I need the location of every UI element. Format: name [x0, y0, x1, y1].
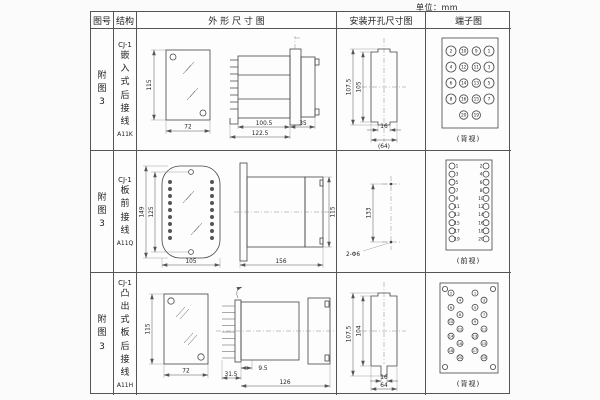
dim-overall-depth: 126 [279, 380, 290, 386]
terminal-number: 9 [474, 49, 477, 55]
terminal-number: 14 [460, 81, 466, 87]
terminal-number: 5 [455, 180, 458, 186]
dim-terminal-length: 31.5 [224, 372, 237, 378]
row1-terminal-cell: 210914121136141358161572019 (背视) [426, 29, 511, 151]
row3-outline-cell: 115 72 9.5 31.5 126 [137, 273, 337, 395]
dim-cutout-inner: 105 [356, 81, 362, 92]
terminal-number: 1 [455, 164, 458, 170]
row1-outline-drawing: 115 72 100.5 35 [138, 30, 336, 150]
row3-outline-drawing: 115 72 9.5 31.5 126 [138, 274, 336, 394]
terminal-circle [483, 212, 489, 218]
structure-model-code: A11Q [117, 240, 133, 247]
row3-fig-no: 附图3 [91, 273, 114, 395]
dim-cutout-outer: 107.5 [346, 325, 352, 342]
terminal-number: 8 [449, 97, 452, 103]
terminal-number: 19 [481, 356, 486, 360]
terminal-number: 6 [449, 305, 452, 309]
structure-model-series: CJ-1 [118, 279, 132, 287]
row2-outline-cell: 149 125 105 156 115 [137, 151, 337, 273]
terminal-circle [449, 171, 455, 177]
dim-overall-depth: 122.5 [251, 130, 268, 136]
terminal-number: 7 [487, 97, 490, 103]
header-install: 安装开孔尺寸图 [337, 12, 426, 29]
row2-terminal-diagram: 1357911131517192468101214161820 [434, 157, 504, 253]
terminal-circle [449, 195, 455, 201]
row3-terminal-cell: 2468101214161820135791113151719 (背视) [426, 273, 511, 395]
terminal-number: 16 [460, 97, 466, 103]
dim-plate-depth: 9.5 [258, 366, 268, 372]
hole-mark-top [389, 182, 392, 185]
header-structure: 结构 [114, 12, 137, 29]
terminal-number: 15 [454, 220, 460, 226]
dim-front-width: 72 [182, 369, 190, 375]
terminal-number: 18 [448, 349, 453, 353]
terminal-circle [483, 163, 489, 169]
structure-model-series: CJ-1 [118, 176, 132, 184]
terminal-circle [442, 364, 447, 369]
terminal-circle [483, 220, 489, 226]
front-view: 115 72 [147, 50, 210, 134]
terminal-box [446, 160, 492, 250]
row1-install-drawing: 107.5 105 16 (64) [338, 30, 425, 150]
structure-name: 凸出式板后接线 [120, 288, 130, 379]
terminal-number: 10 [460, 49, 466, 55]
terminal-number: 1 [487, 49, 490, 55]
terminal-number: 6 [479, 180, 482, 186]
terminal-number: 16 [457, 341, 462, 345]
terminal-number: 19 [454, 237, 460, 243]
dim-cutout-outer: 107.5 [346, 78, 352, 95]
dim-front-height: 115 [145, 323, 151, 334]
fig-no-text: 附图3 [97, 314, 107, 353]
row3-terminal-diagram: 2468101214161820135791113151719 [434, 280, 504, 376]
row3-structure: CJ-1 凸出式板后接线 A11H [114, 273, 137, 395]
terminal-number: 15 [481, 341, 486, 345]
terminal-number: 17 [454, 228, 460, 234]
front-view: 149 125 105 [139, 166, 220, 268]
dim-cutout-width: (64) [378, 144, 390, 150]
structure-name: 板前接线 [120, 185, 130, 237]
row2-structure: CJ-1 板前接线 A11Q [114, 151, 137, 273]
terminal-box [440, 283, 498, 373]
fig-no-text: 附图3 [97, 192, 107, 231]
terminal-number: 12 [457, 327, 462, 331]
hole-size-label: 2-Φ6 [345, 252, 359, 258]
terminal-view-caption: (前视) [457, 256, 480, 266]
row3-install-cell: 107.5 104 16 64 [337, 273, 426, 395]
front-view: 115 72 [145, 294, 208, 378]
terminal-circle [490, 364, 495, 369]
dim-front-height: 115 [147, 79, 153, 90]
terminal-number: 19 [473, 113, 479, 119]
side-view: 9.5 31.5 126 [216, 287, 334, 388]
row1-structure: CJ-1 嵌入式后接线 A11K [114, 29, 137, 151]
terminal-number: 20 [478, 237, 484, 243]
terminal-circle [483, 228, 489, 234]
row2-terminal-cell: 1357911131517192468101214161820 (前视) [426, 151, 511, 273]
dim-hole-spacing: 125 [148, 206, 154, 217]
dim-front-width: 72 [184, 124, 192, 130]
row1-terminal-diagram: 210914121136141358161572019 [434, 35, 504, 131]
row2-outline-drawing: 149 125 105 156 115 [138, 152, 336, 272]
terminal-number: 2 [449, 49, 452, 55]
terminal-number: 1 [473, 291, 475, 295]
dim-rear-depth: 35 [299, 120, 307, 126]
terminal-number: 3 [455, 172, 458, 178]
terminal-circle [483, 204, 489, 210]
terminal-number: 8 [458, 313, 461, 317]
structure-model-code: A11H [117, 382, 133, 389]
dim-plate-width: 105 [185, 258, 196, 264]
terminal-number: 4 [479, 172, 482, 178]
terminal-number: 7 [455, 188, 458, 194]
header-fig-no: 图号 [91, 12, 114, 29]
terminal-number: 3 [487, 65, 490, 71]
terminal-number: 14 [478, 212, 484, 218]
terminal-number: 15 [473, 97, 479, 103]
terminal-number: 4 [449, 65, 452, 71]
terminal-number: 9 [455, 196, 458, 202]
terminal-circle [442, 286, 447, 291]
terminal-view-caption: (背视) [457, 134, 480, 144]
structure-name: 嵌入式后接线 [120, 50, 130, 128]
terminal-number: 13 [473, 81, 479, 87]
terminal-circle [483, 195, 489, 201]
terminal-circle [449, 179, 455, 185]
side-view: 156 115 [234, 163, 336, 268]
structure-model-series: CJ-1 [118, 41, 132, 49]
dim-side-length: 156 [275, 258, 286, 264]
terminal-number: 16 [478, 220, 484, 226]
terminal-number: 12 [460, 65, 466, 71]
terminal-circle [483, 171, 489, 177]
row2-fig-no: 附图3 [91, 151, 114, 273]
terminal-number: 20 [457, 356, 462, 360]
terminal-number: 8 [479, 188, 482, 194]
row1-outline-cell: 115 72 100.5 35 [137, 29, 337, 151]
terminal-number: 5 [473, 305, 475, 309]
terminal-circle [483, 236, 489, 242]
row2-install-cell: 133 2-Φ6 [337, 151, 426, 273]
terminal-number: 6 [449, 81, 452, 87]
row3-install-drawing: 107.5 104 16 64 [338, 274, 425, 394]
header-outline: 外 形 尺 寸 图 [137, 12, 337, 29]
terminal-circle [449, 187, 455, 193]
terminal-number: 18 [478, 228, 484, 234]
terminal-number: 10 [478, 196, 484, 202]
terminal-number: 14 [448, 334, 453, 338]
terminal-circle [449, 163, 455, 169]
row1-fig-no: 附图3 [91, 29, 114, 151]
terminal-number: 12 [478, 204, 484, 210]
terminal-number: 7 [482, 313, 484, 317]
dim-plate-height: 149 [139, 206, 145, 217]
terminal-number: 11 [481, 327, 486, 331]
header-terminal: 端子图 [426, 12, 511, 29]
terminal-circle [490, 286, 495, 291]
dim-slot-width: 16 [380, 124, 388, 130]
terminal-number: 17 [472, 349, 477, 353]
terminal-circle [483, 187, 489, 193]
spec-table: 图号 结构 外 形 尺 寸 图 安装开孔尺寸图 端子图 附图3 CJ-1 嵌入式… [90, 11, 510, 394]
terminal-number: 2 [479, 164, 482, 170]
row2-install-drawing: 133 2-Φ6 [338, 152, 425, 272]
structure-model-code: A11K [117, 131, 133, 138]
row1-install-cell: 107.5 105 16 (64) [337, 29, 426, 151]
terminal-view-caption: (背视) [457, 379, 480, 389]
dim-body-depth: 100.5 [255, 120, 272, 126]
fig-no-text: 附图3 [97, 70, 107, 109]
dim-side-height: 115 [330, 206, 336, 217]
dim-hole-spacing: 133 [366, 207, 372, 218]
dim-slot-width: 16 [380, 375, 388, 381]
terminal-number: 5 [487, 81, 490, 87]
terminal-number: 9 [473, 320, 476, 324]
terminal-circle [483, 179, 489, 185]
terminal-number: 13 [472, 334, 477, 338]
terminal-number: 3 [482, 298, 484, 302]
side-view: 100.5 35 122.5 [230, 36, 319, 139]
dim-cutout-inner: 104 [356, 325, 362, 336]
terminal-number: 4 [458, 298, 461, 302]
terminal-number: 11 [454, 204, 460, 210]
terminal-number: 2 [449, 291, 451, 295]
dim-cutout-width: 64 [380, 383, 388, 389]
terminal-number: 11 [473, 65, 479, 71]
hole-mark-bottom [389, 240, 392, 243]
terminal-number: 13 [454, 212, 460, 218]
terminal-number: 20 [460, 113, 466, 119]
terminal-number: 10 [448, 320, 453, 324]
